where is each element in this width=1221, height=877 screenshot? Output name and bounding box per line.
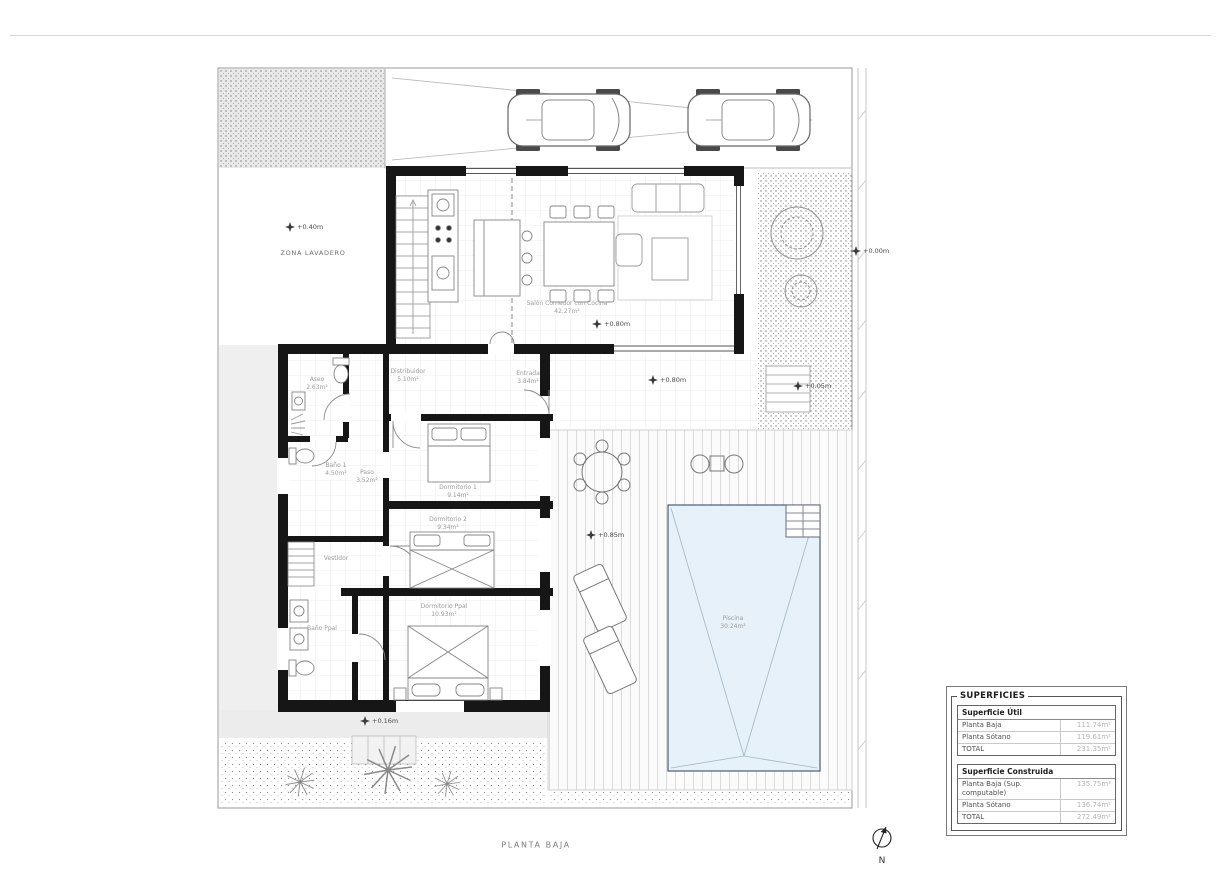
level-value: +0.05m bbox=[805, 382, 831, 390]
surfaces-panel: SUPERFICIES Superficie Útil Planta Baja … bbox=[946, 686, 1127, 836]
staircase bbox=[396, 196, 430, 338]
room-name: Salón Comedor con Cocina bbox=[527, 300, 608, 308]
zone-label: ZONA LAVADERO bbox=[280, 249, 345, 257]
room-name: Dormitorio 2 bbox=[429, 516, 467, 524]
side-path bbox=[219, 345, 278, 710]
table-section-header: Superficie Construida bbox=[958, 765, 1115, 779]
room-label-dormitorio-ppal: Dormitorio Ppal 10.93m² bbox=[421, 603, 468, 619]
pool bbox=[668, 505, 820, 771]
level-marker-icon bbox=[648, 375, 658, 385]
room-label-paso: Paso 3.52m² bbox=[356, 469, 378, 485]
north-arrow-icon bbox=[873, 827, 891, 849]
room-name: Baño Ppal bbox=[307, 625, 337, 633]
level-marker-deck: +0.85m bbox=[586, 530, 624, 540]
room-area: 9.14m² bbox=[439, 492, 477, 500]
room-name: Aseo bbox=[306, 376, 328, 384]
table-row: Planta Sótano 119.61m² bbox=[958, 731, 1115, 743]
room-area: 4.50m² bbox=[325, 470, 347, 478]
row-value: 119.61m² bbox=[1060, 732, 1115, 743]
level-marker-lavadero: +0.40m bbox=[285, 222, 323, 232]
room-label-distribuidor: Distribuidor 5.10m² bbox=[390, 368, 425, 384]
room-label-dormitorio1: Dormitorio 1 9.14m² bbox=[439, 484, 477, 500]
room-label-dormitorio2: Dormitorio 2 9.34m² bbox=[429, 516, 467, 532]
room-name: Dormitorio Ppal bbox=[421, 603, 468, 611]
level-marker-calle: +0.00m bbox=[851, 246, 889, 256]
bed-dormitorio2 bbox=[410, 532, 494, 588]
wardrobe bbox=[288, 542, 314, 586]
level-value: +0.00m bbox=[863, 247, 889, 255]
room-name: Dormitorio 1 bbox=[439, 484, 477, 492]
room-area: 42.27m² bbox=[527, 308, 608, 316]
level-marker-icon bbox=[360, 716, 370, 726]
row-value: 272.49m² bbox=[1060, 812, 1115, 823]
level-marker-icon bbox=[851, 246, 861, 256]
row-label: Planta Baja bbox=[958, 720, 1060, 731]
room-area: 5.10m² bbox=[390, 376, 425, 384]
row-value: 136.74m² bbox=[1060, 800, 1115, 811]
room-label-bano1: Baño 1 4.50m² bbox=[325, 462, 347, 478]
level-marker-icon bbox=[592, 319, 602, 329]
room-label-entrada: Entrada 3.84m² bbox=[516, 370, 540, 386]
level-value: +0.40m bbox=[297, 223, 323, 231]
row-label: Planta Sótano bbox=[958, 800, 1060, 811]
row-value: 135.75m² bbox=[1060, 779, 1115, 799]
terrace-plaza bbox=[550, 354, 760, 430]
level-marker-icon bbox=[285, 222, 295, 232]
surfaces-title: SUPERFICIES bbox=[957, 691, 1028, 701]
table-row: Planta Baja 111.74m² bbox=[958, 720, 1115, 731]
surfaces-construida-table: Superficie Construida Planta Baja (Sup. … bbox=[957, 764, 1116, 824]
pool-steps bbox=[786, 505, 820, 537]
room-label-salon: Salón Comedor con Cocina 42.27m² bbox=[527, 300, 608, 316]
surfaces-util-table: Superficie Útil Planta Baja 111.74m² Pla… bbox=[957, 705, 1116, 756]
page-title: PLANTA BAJA bbox=[501, 841, 570, 850]
room-area: 3.52m² bbox=[356, 477, 378, 485]
table-row: Planta Baja (Sup. computable) 135.75m² bbox=[958, 779, 1115, 799]
room-label-bano-ppal: Baño Ppal bbox=[307, 625, 337, 633]
level-marker-terraza: +0.80m bbox=[648, 375, 686, 385]
bed-dormitorio-ppal bbox=[394, 626, 502, 700]
retaining-wall-ticks bbox=[858, 110, 866, 750]
room-name: Distribuidor bbox=[390, 368, 425, 376]
row-label: Planta Sótano bbox=[958, 732, 1060, 743]
level-value: +0.80m bbox=[660, 376, 686, 384]
room-name: Baño 1 bbox=[325, 462, 347, 470]
bed-dormitorio1 bbox=[428, 424, 490, 482]
table-row: TOTAL 272.49m² bbox=[958, 811, 1115, 823]
room-area: 9.34m² bbox=[429, 524, 467, 532]
table-row: TOTAL 231.35m² bbox=[958, 743, 1115, 755]
room-name: Piscina bbox=[720, 615, 745, 623]
level-marker-icon bbox=[586, 530, 596, 540]
table-section-header: Superficie Útil bbox=[958, 706, 1115, 720]
room-area: 2.63m² bbox=[306, 384, 328, 392]
row-value: 111.74m² bbox=[1060, 720, 1115, 731]
level-value: +0.85m bbox=[598, 531, 624, 539]
surfaces-fieldset: SUPERFICIES Superficie Útil Planta Baja … bbox=[951, 691, 1122, 831]
room-area: 10.93m² bbox=[421, 611, 468, 619]
room-label-piscina: Piscina 30.24m² bbox=[720, 615, 745, 631]
table-row: Planta Sótano 136.74m² bbox=[958, 799, 1115, 811]
garden-bottom-right bbox=[548, 792, 852, 806]
row-value: 231.35m² bbox=[1060, 744, 1115, 755]
room-name: Entrada bbox=[516, 370, 540, 378]
room-label-vestidor: Vestidor bbox=[324, 555, 348, 563]
room-name: Paso bbox=[356, 469, 378, 477]
row-label: TOTAL bbox=[958, 812, 1060, 823]
level-marker-escalera: +0.05m bbox=[793, 381, 831, 391]
room-name: Vestidor bbox=[324, 555, 348, 563]
north-label: N bbox=[879, 856, 886, 866]
room-label-aseo: Aseo 2.63m² bbox=[306, 376, 328, 392]
level-marker-jardin: +0.16m bbox=[360, 716, 398, 726]
level-marker-icon bbox=[793, 381, 803, 391]
row-label: TOTAL bbox=[958, 744, 1060, 755]
kitchen-counter bbox=[428, 190, 458, 302]
level-marker-salon: +0.80m bbox=[592, 319, 630, 329]
level-value: +0.80m bbox=[604, 320, 630, 328]
room-area: 30.24m² bbox=[720, 623, 745, 631]
row-label: Planta Baja (Sup. computable) bbox=[958, 779, 1060, 799]
level-value: +0.16m bbox=[372, 717, 398, 725]
room-area: 3.84m² bbox=[516, 378, 540, 386]
